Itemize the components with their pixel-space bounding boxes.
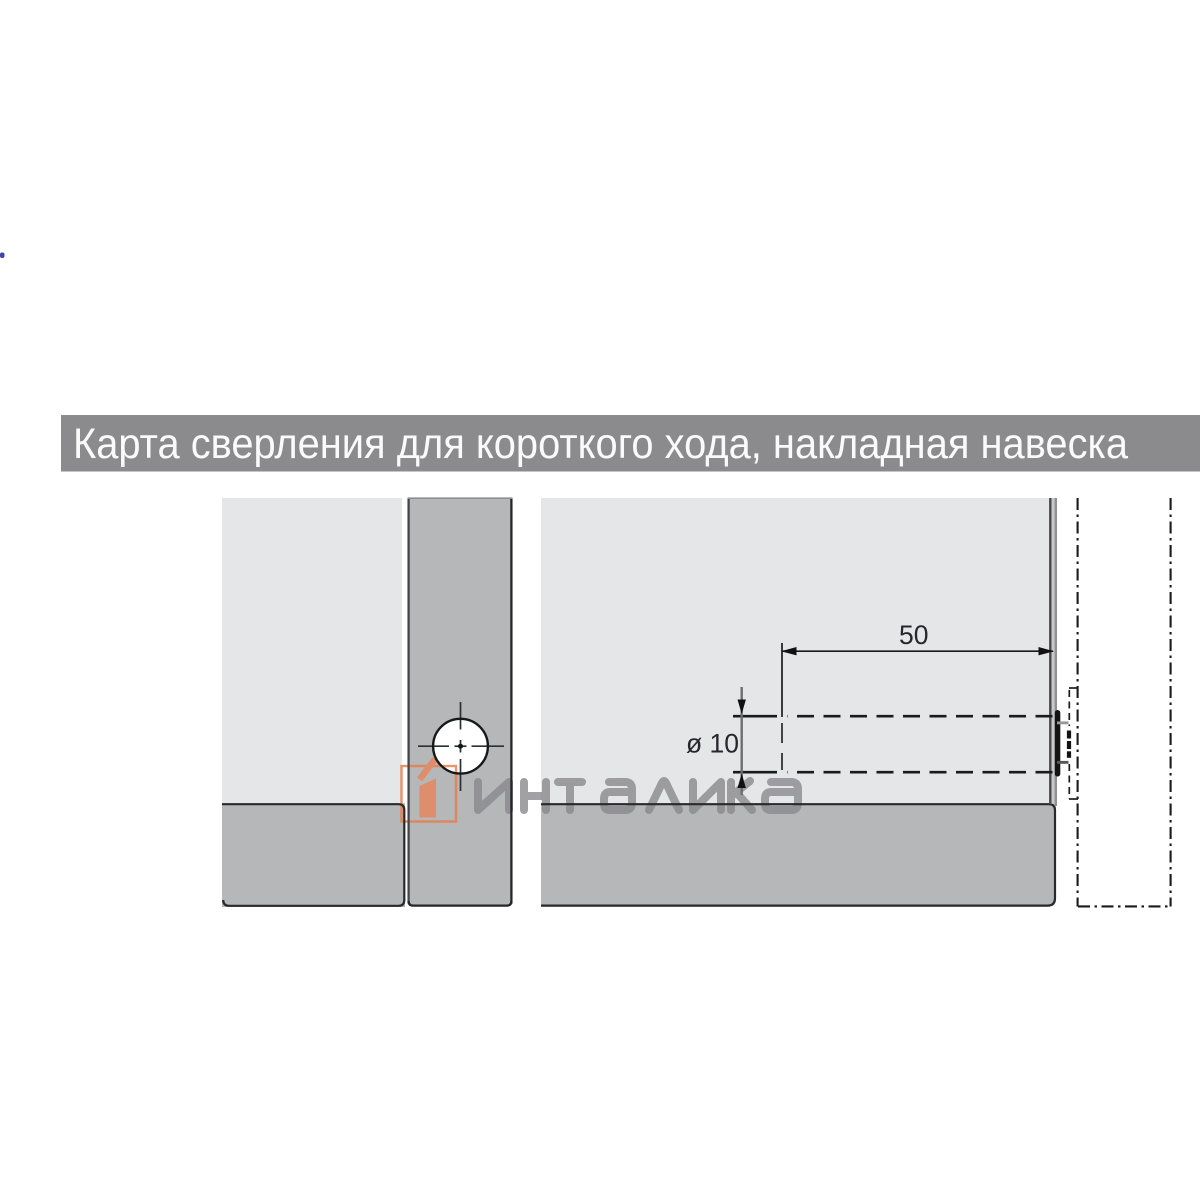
svg-text:Карта сверления для короткого: Карта сверления для короткого хода, накл… xyxy=(73,420,1128,468)
svg-text:50: 50 xyxy=(899,620,928,650)
svg-text:ø 10: ø 10 xyxy=(686,729,739,759)
